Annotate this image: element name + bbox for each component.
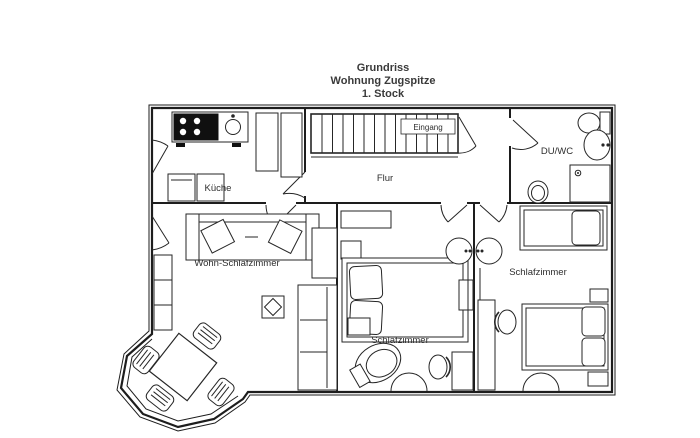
entrance-door [458,117,476,153]
bed-pillow [582,338,605,366]
flur-label: Flur [377,173,393,184]
kueche-label: Küche [205,183,232,194]
bay-dining-set [131,321,236,413]
nightstand [348,318,370,335]
schlafzimmer-rechts-label: Schlafzimmer [509,267,567,278]
kueche-door [152,140,168,174]
counter-detail [176,143,185,147]
title-line-3: 1. Stock [362,88,405,100]
washbasin-faucet-dot [469,250,472,253]
stove-burner [194,129,200,135]
shower-drain-dot [577,172,579,174]
cabinet-bottom [452,352,473,390]
sink-faucet-dot [606,143,609,146]
floor-plan-page: Grundriss Wohnung Zugspitze 1. Stock [0,0,700,438]
washbasin [476,238,502,264]
counter-detail [232,143,241,147]
wc [528,181,548,203]
washbasin [446,238,472,264]
schlafzimmer-rechts-door [480,205,507,222]
kitchen-cabinet-tall [281,113,302,177]
shelf [459,280,473,310]
cabinet-small [341,241,361,259]
sofa-armrest [186,214,199,260]
schlafzimmer-rechts-room: Schlafzimmer [476,206,608,390]
washbasin-faucet-dot [465,250,468,253]
stove [174,114,218,140]
title-line-1: Grundriss [357,62,410,74]
kitchen-sink [226,120,241,135]
bed-pillow [349,265,383,300]
schlafzimmer-mitte-door [441,205,467,222]
bathroom-sink [584,130,610,160]
schlafzimmer-mitte-room: Schlafzimmer [341,211,473,393]
bed-pillow [582,307,605,336]
staircase: Eingang [311,114,458,157]
kueche-room: Küche [168,112,302,201]
chair [498,310,516,334]
wardrobe-left [154,255,172,330]
washbasin-faucet-dot [481,250,484,253]
kitchen-faucet [231,114,235,118]
flur-room: Flur [377,173,393,184]
chair [429,355,447,379]
french-door-rechts [523,373,559,391]
nightstand [588,372,608,386]
bed-pillow [572,211,600,245]
wohnschlafzimmer-left-door [152,216,169,250]
wardrobe [478,300,495,390]
stove-burner [194,118,200,124]
wohn-schlafzimmer-label: Wohn-Schlafzimmer [194,258,279,269]
duwc-door [512,120,538,150]
dining-chair [206,376,236,408]
duwc-room: DU/WC [528,112,610,203]
floor-plan-drawing: Grundriss Wohnung Zugspitze 1. Stock [0,0,700,438]
wardrobe-top [341,211,391,228]
plan-title: Grundriss Wohnung Zugspitze 1. Stock [331,62,436,100]
sink-faucet-dot [601,143,604,146]
stove-burner [180,118,186,124]
eingang-label: Eingang [413,123,442,132]
kitchen-cabinet-tall [256,113,278,171]
title-line-2: Wohnung Zugspitze [331,75,436,87]
couch-vertical [298,285,337,390]
kitchen-cabinet [168,174,195,201]
duwc-label: DU/WC [541,146,573,157]
schlafzimmer-mitte-label: Schlafzimmer [371,335,429,346]
nightstand [590,289,608,302]
side-table [262,296,284,318]
french-door-mitte [391,373,427,391]
stove-burner [180,129,186,135]
washbasin-faucet-dot [477,250,480,253]
wardrobe-right [312,228,337,278]
